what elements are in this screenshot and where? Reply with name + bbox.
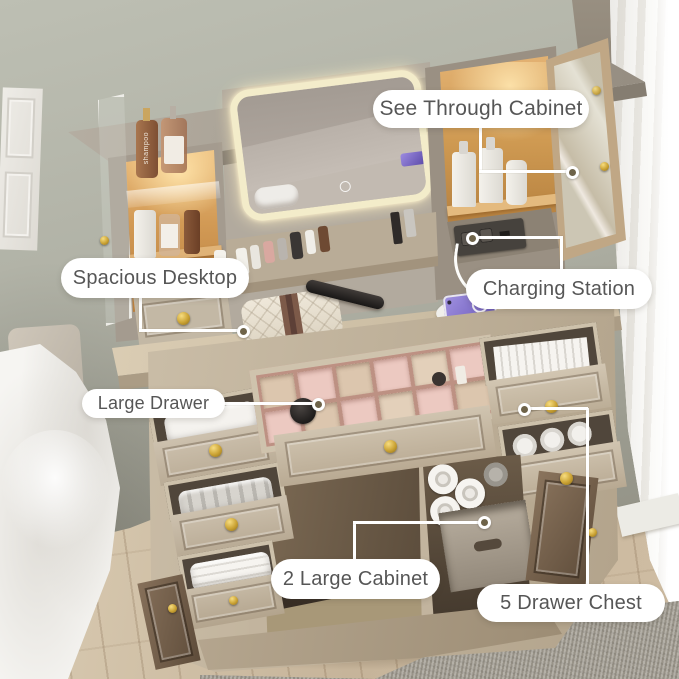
bottle-pump-top bbox=[459, 141, 468, 154]
drawer-knob bbox=[560, 472, 573, 485]
gold-hinge bbox=[592, 86, 601, 95]
organizer-cell bbox=[335, 362, 374, 398]
bottle-pump-neck bbox=[143, 108, 150, 121]
door-knob bbox=[100, 236, 109, 245]
callout-connector-line bbox=[477, 236, 563, 239]
callout-charging-station: Charging Station bbox=[466, 269, 652, 309]
white-pump-bottle bbox=[134, 210, 156, 258]
fabric-storage-box bbox=[438, 500, 537, 593]
door-panel-trim bbox=[533, 480, 590, 579]
bedding-fold bbox=[0, 430, 110, 550]
bottle-pump-top bbox=[486, 137, 495, 150]
cosmetic-jar bbox=[432, 372, 446, 386]
towel-roll bbox=[566, 420, 593, 447]
callout-label: Spacious Desktop bbox=[73, 267, 237, 290]
white-dresser bbox=[0, 87, 43, 250]
dresser-panel bbox=[5, 98, 35, 159]
callout-connector-line bbox=[353, 521, 481, 524]
door-knob bbox=[168, 604, 177, 613]
callout-five-drawer-chest: 5 Drawer Chest bbox=[477, 584, 665, 622]
drawer-knob bbox=[177, 312, 190, 325]
callout-spacious-desktop: Spacious Desktop bbox=[61, 258, 249, 298]
callout-connector-dot bbox=[466, 232, 479, 245]
drawer-knob bbox=[384, 440, 397, 453]
bottle-label bbox=[164, 136, 184, 164]
drawer-knob bbox=[229, 596, 238, 605]
shampoo-bottle-label: shampoo bbox=[143, 132, 150, 164]
callout-connector-line bbox=[479, 128, 482, 173]
shampoo-bottle-amber: shampoo bbox=[136, 120, 158, 178]
callout-large-drawer: Large Drawer bbox=[82, 389, 225, 418]
bottle-label bbox=[161, 224, 178, 248]
callout-connector-dot bbox=[566, 166, 579, 179]
phone-camera-dot bbox=[447, 300, 451, 304]
callout-connector-line bbox=[560, 236, 563, 272]
bottle-pump-neck bbox=[170, 106, 176, 119]
callout-connector-line bbox=[222, 402, 314, 405]
white-pump-bottle bbox=[452, 152, 476, 207]
clear-label-bottle bbox=[159, 214, 180, 256]
callout-label: 5 Drawer Chest bbox=[500, 592, 642, 615]
white-pump-bottle bbox=[479, 148, 503, 203]
gray-roll bbox=[483, 462, 509, 488]
callout-connector-line bbox=[139, 296, 142, 332]
callout-label: Charging Station bbox=[483, 278, 635, 301]
glass-pane bbox=[554, 52, 616, 248]
amber-small-bottle bbox=[184, 210, 200, 254]
door-panel-trim bbox=[144, 581, 193, 662]
callout-label: See Through Cabinet bbox=[379, 97, 582, 121]
gold-hinge bbox=[600, 162, 609, 171]
callout-label: Large Drawer bbox=[98, 393, 209, 414]
organizer-cell bbox=[373, 356, 412, 392]
callout-see-through-cabinet: See Through Cabinet bbox=[373, 90, 589, 128]
drawer-knob bbox=[209, 444, 222, 457]
callout-connector-line bbox=[353, 521, 356, 561]
clear-bottle bbox=[161, 118, 187, 173]
callout-two-large-cabinet: 2 Large Cabinet bbox=[271, 559, 440, 599]
window-light bbox=[646, 0, 679, 625]
callout-connector-dot bbox=[518, 403, 531, 416]
dresser-panel bbox=[3, 171, 33, 238]
door-knob bbox=[588, 528, 597, 537]
white-jar bbox=[506, 160, 527, 205]
callout-connector-dot bbox=[312, 398, 325, 411]
callout-connector-line bbox=[530, 407, 588, 410]
annotated-product-photo: shampoo bbox=[0, 0, 679, 679]
callout-connector-line bbox=[479, 170, 569, 173]
callout-connector-line bbox=[139, 329, 239, 332]
callout-connector-dot bbox=[237, 325, 250, 338]
box-handle-slot bbox=[473, 538, 502, 552]
callout-label: 2 Large Cabinet bbox=[283, 568, 428, 591]
drawer-knob bbox=[225, 518, 238, 531]
callout-connector-dot bbox=[478, 516, 491, 529]
callout-connector-line bbox=[586, 408, 589, 586]
